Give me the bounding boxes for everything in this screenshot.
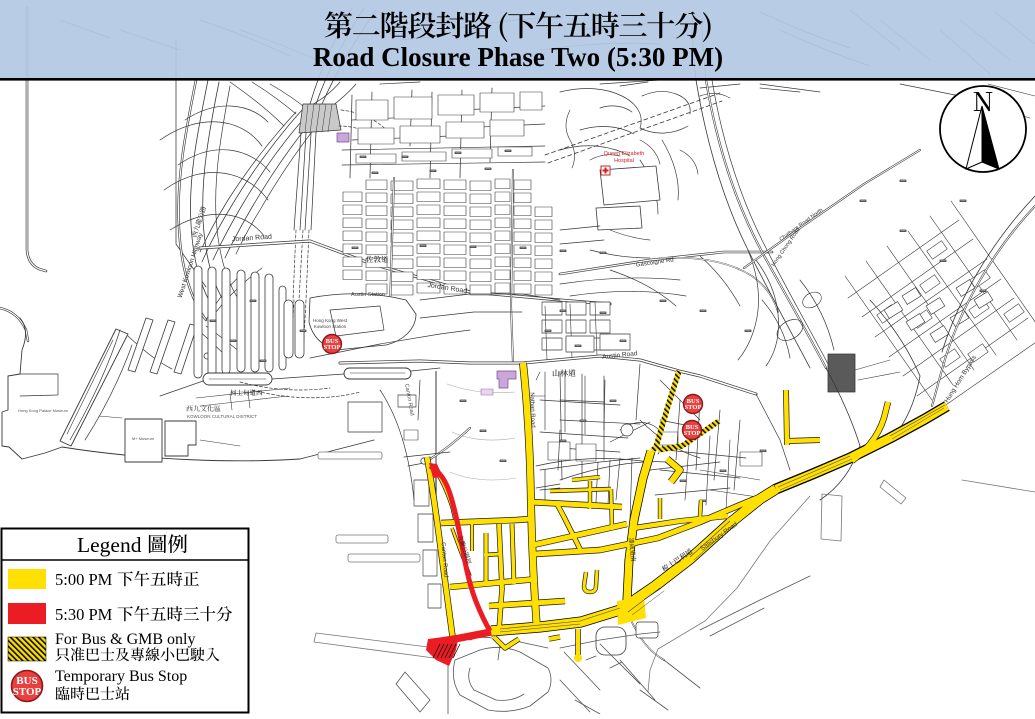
svg-text:Hong Kong West: Hong Kong West bbox=[313, 318, 348, 323]
svg-text:Hospital: Hospital bbox=[614, 158, 634, 164]
svg-text:STOP: STOP bbox=[685, 404, 702, 411]
svg-text:Kowloon Station: Kowloon Station bbox=[314, 324, 347, 329]
svg-text:STOP: STOP bbox=[684, 430, 701, 437]
svg-text:STOP: STOP bbox=[13, 686, 42, 698]
svg-text:5:30 PM: 5:30 PM bbox=[55, 605, 113, 624]
svg-text:Queen Elizabeth: Queen Elizabeth bbox=[604, 151, 645, 157]
svg-text:Nathan Road: Nathan Road bbox=[528, 392, 535, 428]
svg-text:KOWLOON CULTURAL DISTRICT: KOWLOON CULTURAL DISTRICT bbox=[187, 414, 257, 419]
svg-text:Temporary Bus Stop: Temporary Bus Stop bbox=[55, 668, 187, 685]
svg-text:For Bus & GMB only: For Bus & GMB only bbox=[55, 631, 195, 648]
svg-text:5:00 PM: 5:00 PM bbox=[55, 570, 113, 589]
svg-text:M+ Museum: M+ Museum bbox=[132, 436, 155, 441]
svg-text:Legend: Legend bbox=[77, 533, 142, 557]
svg-text:Road Closure Phase Two (5:30 P: Road Closure Phase Two (5:30 PM) bbox=[313, 42, 723, 72]
svg-text:Austin Station: Austin Station bbox=[351, 292, 385, 298]
svg-text:STOP: STOP bbox=[324, 344, 341, 351]
svg-text:Hong Kong Palace Museum: Hong Kong Palace Museum bbox=[18, 408, 68, 413]
